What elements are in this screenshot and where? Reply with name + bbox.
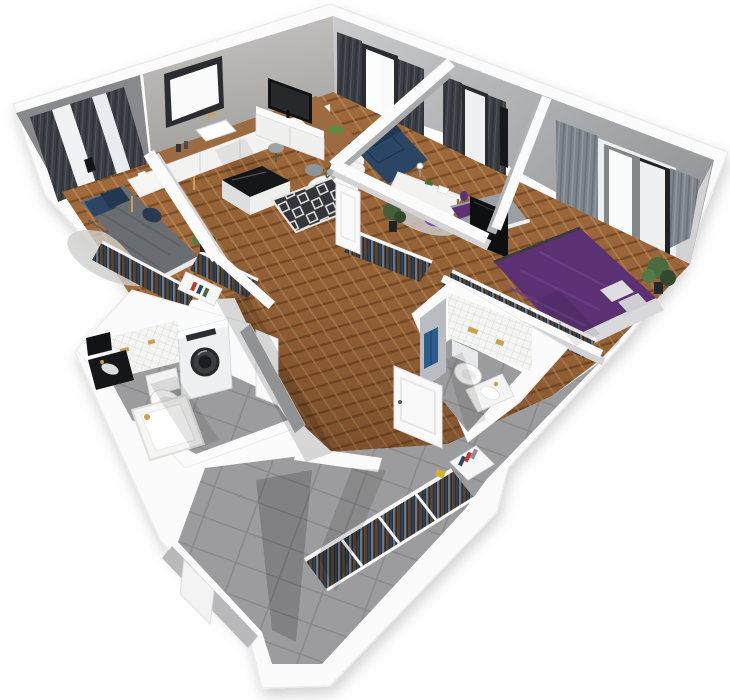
kids-room-door	[336, 182, 360, 254]
gold-tap	[144, 414, 150, 420]
floor-plan-render	[0, 0, 730, 700]
jar	[176, 144, 181, 152]
gold-tap	[494, 382, 498, 386]
doors	[336, 182, 360, 254]
floor-plan-stage	[0, 0, 730, 700]
jar	[184, 141, 188, 149]
gold-tap	[100, 360, 104, 364]
door-handle	[398, 400, 402, 404]
bar-chair	[305, 164, 323, 176]
washing-machine	[178, 319, 232, 401]
window-pane	[640, 161, 665, 252]
window-dark-slit	[500, 106, 508, 168]
bowl-green	[328, 126, 344, 134]
